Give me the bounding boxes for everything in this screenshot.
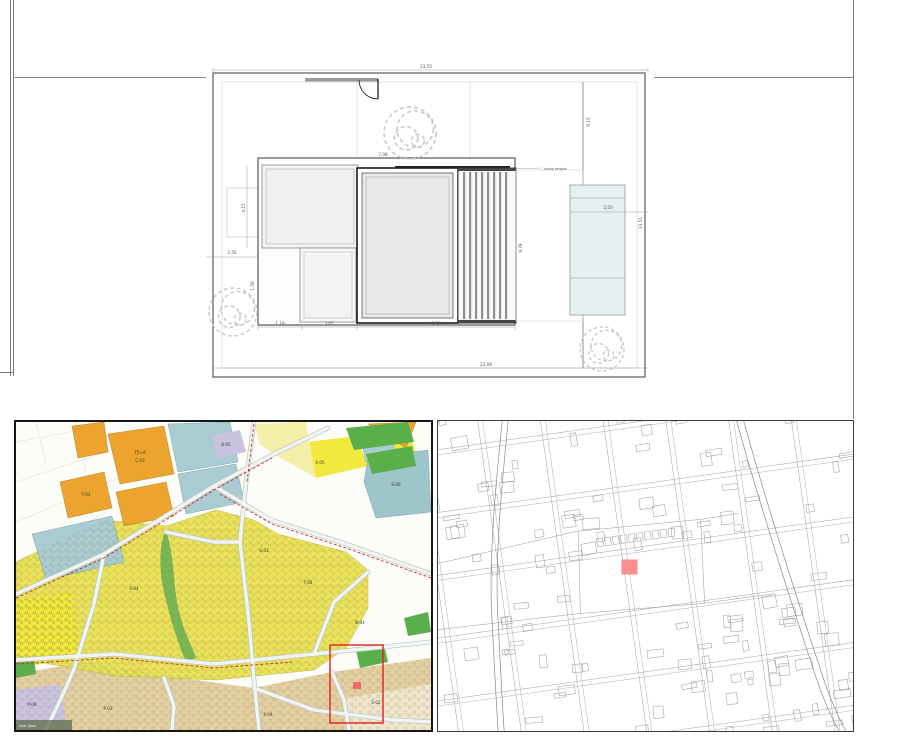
- site-highlight: [353, 682, 361, 689]
- zone-label: S-03: [259, 548, 269, 553]
- site-plan-drawing: 23,55: [206, 58, 654, 383]
- frame-line-left-outer: [10, 0, 11, 376]
- zone-label: B-04: [355, 620, 365, 625]
- zone-label: P-04: [263, 712, 272, 717]
- pergola-louvers: [458, 168, 516, 323]
- cadastral-map: [438, 421, 853, 731]
- dim-left-small: 1,50: [250, 281, 255, 291]
- dim-seg-b: 3,65: [324, 321, 334, 326]
- dim-left-height: 4,15: [241, 203, 246, 213]
- zoning-map: T5+A Ç-03 T-03 B-05 S-05 S-06 S-04 S-03 …: [16, 422, 431, 730]
- zone-label: T5+A: [133, 450, 146, 455]
- zone-label: P-03: [103, 706, 112, 711]
- dim-left-offset: 2,50: [227, 250, 237, 255]
- zone-label: S-04: [129, 586, 139, 591]
- dim-right-height: 13,51: [638, 217, 643, 229]
- frame-tick-left: [0, 372, 13, 373]
- zone-label: P-06: [27, 702, 36, 707]
- site-highlight: [621, 559, 637, 574]
- dim-seg-c: 6,36: [431, 321, 441, 326]
- dim-building-top: 7,08: [378, 152, 388, 157]
- frame-line-right: [853, 0, 854, 419]
- dim-bottom: 23,06: [480, 362, 492, 367]
- zone-label: S-05: [315, 460, 325, 465]
- dim-seg-a: 1,18: [275, 321, 285, 326]
- dim-terrace-depth: 9,78: [518, 243, 523, 253]
- zone-label: B-05: [221, 442, 231, 447]
- dim-pool-width: 2,50: [603, 205, 613, 210]
- cadastral-map-panel: [437, 420, 854, 732]
- frame-line-left-inner: [13, 0, 14, 376]
- map-corner-label: imar planı: [19, 724, 36, 728]
- zone-label: T-03: [81, 492, 91, 497]
- sheet: 23,55: [0, 0, 910, 736]
- pool: [570, 185, 625, 315]
- plan-annotation: -ahşap pergola: [543, 167, 567, 171]
- dim-right-top: 9,15: [586, 117, 591, 127]
- zone-label: Ç-03: [135, 458, 145, 463]
- zone-label: T-04: [303, 580, 313, 585]
- dim-top: 23,55: [420, 64, 432, 69]
- zone-label: S-02: [371, 700, 381, 705]
- zoning-map-panel: T5+A Ç-03 T-03 B-05 S-05 S-06 S-04 S-03 …: [14, 420, 433, 732]
- zone-label: S-06: [391, 482, 401, 487]
- entrance-wall: [305, 78, 378, 82]
